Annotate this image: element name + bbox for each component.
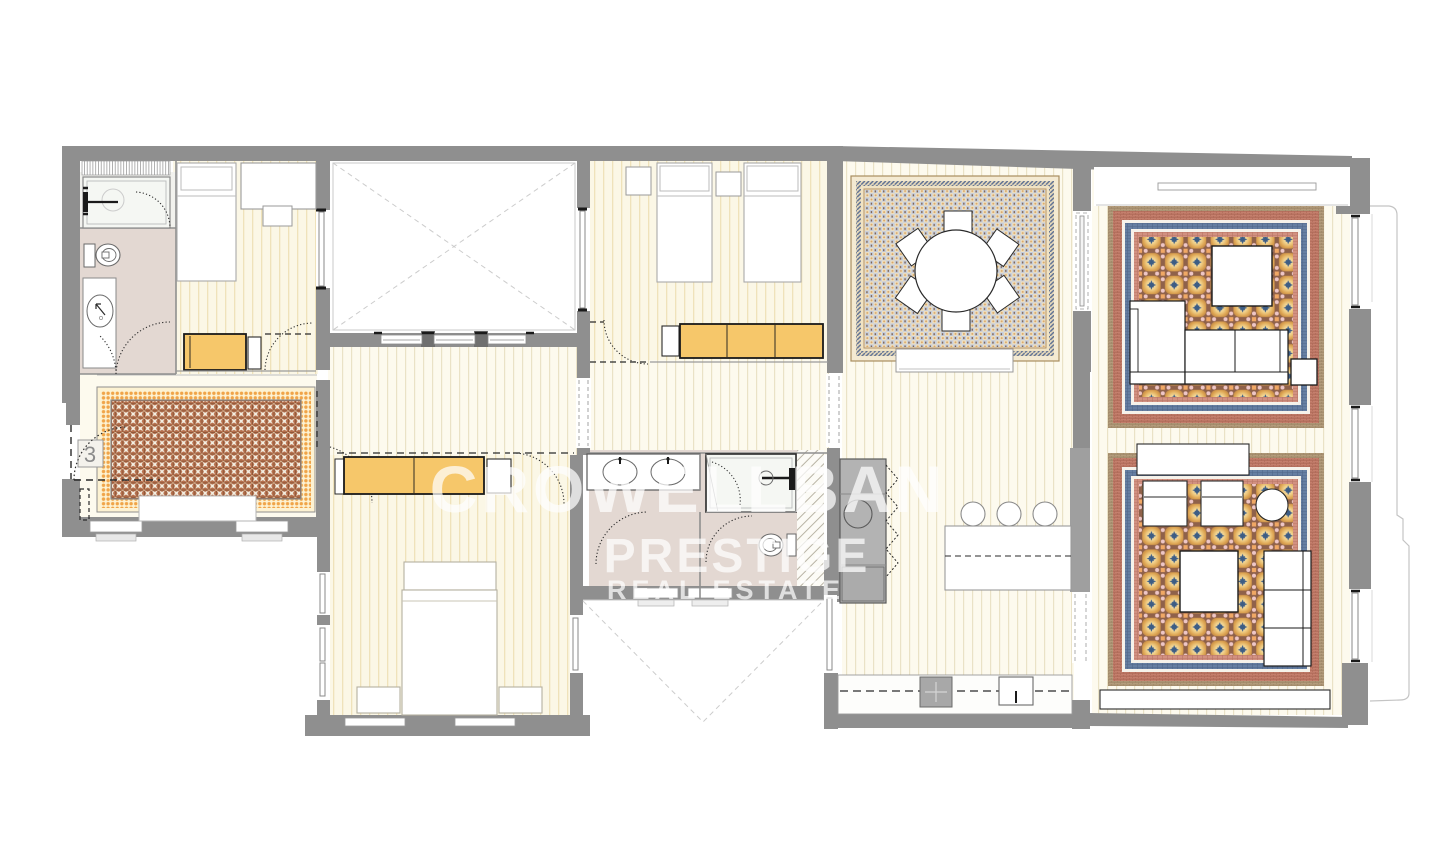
svg-text:REAL ESTATE: REAL ESTATE <box>607 575 845 605</box>
svg-text:CROWELLBAN: CROWELLBAN <box>430 452 947 526</box>
svg-text:3: 3 <box>84 442 96 467</box>
